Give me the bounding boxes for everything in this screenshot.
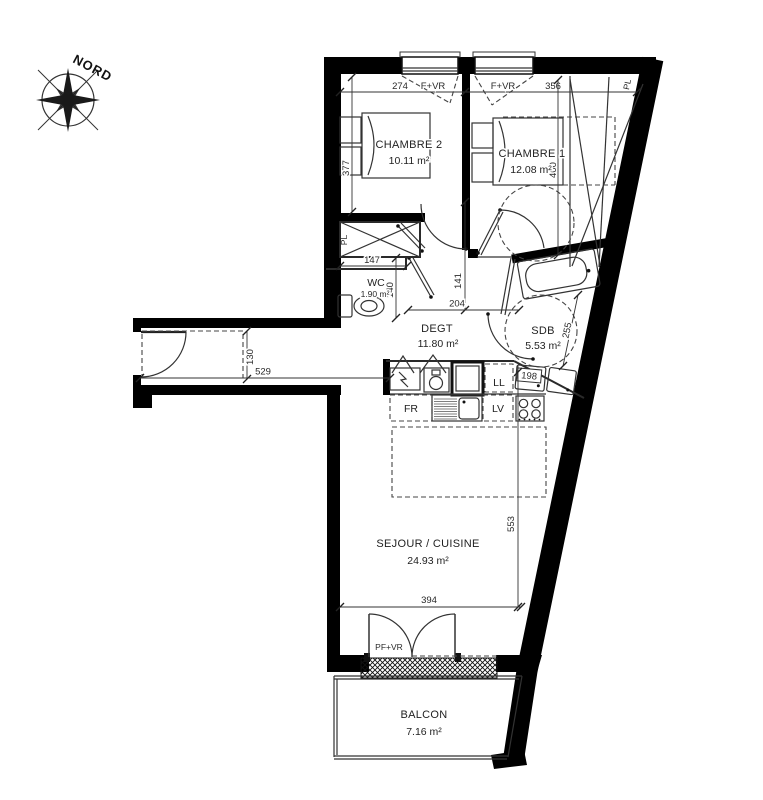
- threshold-hatch: [361, 658, 497, 678]
- chambre1-name: CHAMBRE 1: [499, 148, 566, 160]
- closet-chambre1-label: PL: [621, 78, 633, 91]
- entry-door: [141, 332, 186, 377]
- dim-degt-width: 204: [449, 299, 465, 310]
- dim-sdb-depth: 255: [561, 322, 575, 340]
- sejour-area: 24.93 m²: [407, 555, 449, 567]
- entry-corridor: [142, 331, 243, 378]
- dim-chambre1-width: 356: [545, 81, 561, 92]
- dishwasher: LV: [483, 395, 513, 421]
- kitchen-sink: [432, 395, 482, 421]
- dim-entry-length: 529: [255, 367, 271, 378]
- fridge-label: FR: [404, 403, 418, 415]
- sdb-name: SDB: [531, 325, 555, 337]
- door-chambre2: [396, 204, 468, 253]
- window-chambre2: [400, 52, 460, 103]
- dim-wc-width: 147: [364, 255, 380, 266]
- closet-degt: PL: [339, 222, 420, 257]
- degt-area: 11.80 m²: [418, 338, 459, 350]
- sdb-area: 5.53 m²: [525, 340, 561, 352]
- wc-area: 1.90 m²: [361, 289, 390, 299]
- chambre2-name: CHAMBRE 2: [376, 139, 443, 151]
- dim-degt-depth: 141: [453, 273, 464, 289]
- dim-sejour-width: 394: [421, 595, 437, 606]
- floor-plan-page: PF+VR PL PL: [0, 0, 763, 800]
- kitchen-island-zone: [392, 427, 546, 497]
- floor-plan-svg: PF+VR PL PL: [0, 0, 763, 800]
- cooktop: [516, 396, 544, 421]
- compass: NORD: [36, 51, 115, 132]
- dim-sejour-depth: 553: [506, 516, 517, 532]
- door-sdb: [486, 312, 535, 361]
- dishwasher-label: LV: [492, 403, 504, 415]
- dim-chambre2-depth: 377: [341, 160, 352, 176]
- door-chambre1: [476, 208, 544, 255]
- fridge: FR: [390, 395, 432, 421]
- chambre2-area: 10.11 m²: [389, 155, 430, 167]
- appliance-box-a: 198: [515, 365, 546, 391]
- electrical-panel: [390, 368, 420, 390]
- dim-chambre2-width: 274: [392, 81, 408, 92]
- window-chambre1-label: F+VR: [491, 81, 516, 92]
- balcon-area: 7.16 m²: [406, 726, 442, 738]
- balcon-name: BALCON: [400, 709, 447, 721]
- wc-name: WC: [367, 277, 385, 289]
- dim-sdb-width: 198: [521, 370, 538, 382]
- dim-entry-width: 130: [245, 349, 256, 365]
- balcony: [334, 656, 522, 759]
- tall-unit: [452, 362, 483, 395]
- compass-north-label: NORD: [71, 51, 115, 84]
- window-chambre2-label: F+VR: [421, 81, 446, 92]
- washing-machine: LL: [485, 364, 513, 392]
- french-door-label: PF+VR: [375, 642, 403, 652]
- washer-label: LL: [493, 377, 505, 389]
- sejour-name: SEJOUR / CUISINE: [376, 538, 479, 550]
- degt-name: DEGT: [421, 323, 453, 335]
- kitchen: LL 198 FR LV: [390, 355, 577, 497]
- french-door: PF+VR: [364, 614, 461, 662]
- chambre1-area: 12.08 m²: [510, 164, 552, 176]
- interior-walls: [324, 74, 610, 398]
- closet-degt-label: PL: [339, 235, 349, 246]
- window-chambre1: [473, 52, 535, 105]
